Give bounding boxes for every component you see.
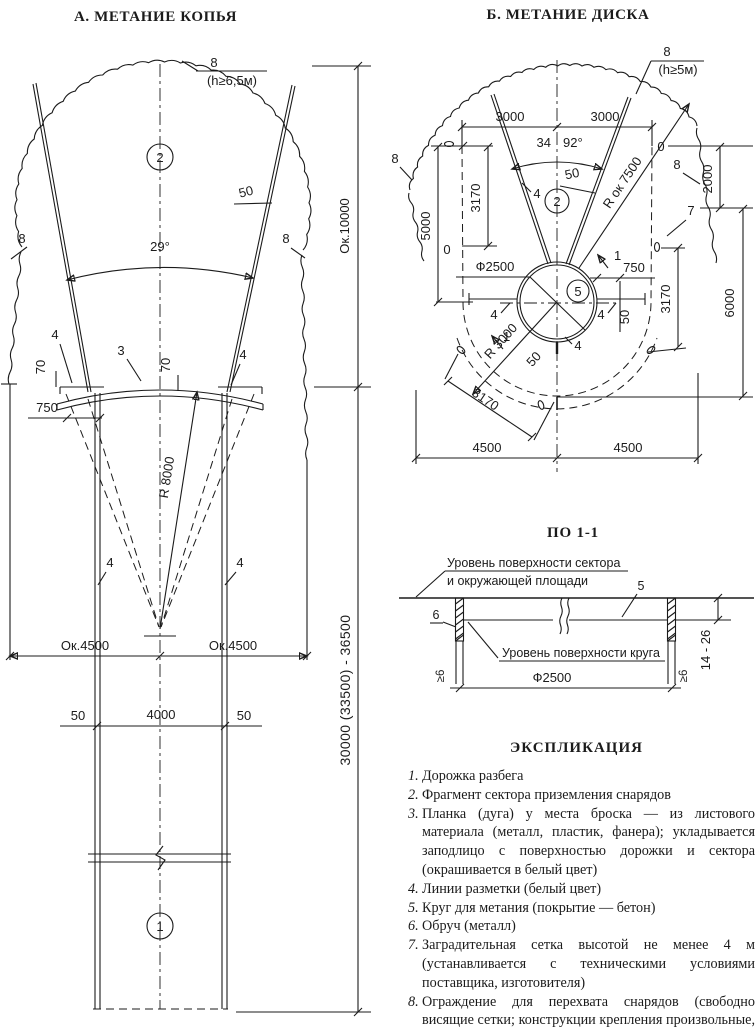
- level-mark-br: [646, 345, 656, 355]
- dim-3000-left: 3000: [496, 109, 525, 124]
- fence-ref-8: 8: [210, 55, 217, 70]
- level-circle-label: Уровень поверхности круга: [502, 646, 660, 660]
- section-po-1-1: ПО 1-1 Уровень поверхности сектора и окр…: [399, 525, 754, 688]
- item-text: Планка (дуга) у места броска — из листов…: [422, 805, 755, 880]
- callout-1-label: 1: [156, 919, 163, 934]
- dim-750: 750: [36, 400, 58, 415]
- fence-ref-8-right-b: 8: [673, 157, 680, 172]
- radius-8000-label: R 8000: [156, 455, 177, 499]
- leader-level-sector: [416, 571, 445, 597]
- wing-ref-4-left: 4: [51, 327, 58, 342]
- explication-item: 2.Фрагмент сектора приземления снарядов: [398, 786, 755, 805]
- explication-block: ЭКСПЛИКАЦИЯ 1.Дорожка разбега 2.Фрагмент…: [398, 740, 755, 1031]
- ref-4-wing-right: 4: [597, 307, 604, 322]
- diagram-discus-throw: 3000 3000 34 92° 50 R ок 7500 2 8 (h≥5м)…: [391, 44, 753, 472]
- diagram-javelin-throw: 29° 2 8 (h≥6,5м) 8 8 50: [1, 55, 371, 1012]
- drawing-sheet: А. МЕТАНИЕ КОПЬЯ Б. МЕТАНИЕ ДИСКА: [0, 0, 756, 1031]
- explication-item: 7.Заградительная сетка высотой не менее …: [398, 936, 755, 992]
- dim-ok4500-right: Ок.4500: [209, 638, 257, 653]
- level-mark-right-mid: [655, 243, 660, 252]
- item-number: 1.: [398, 767, 422, 786]
- dim-ok10000: Ок.10000: [337, 198, 352, 254]
- sector-marking-lines: [33, 83, 295, 392]
- dim-50b-right: 50: [617, 310, 632, 324]
- dim-50-left: 50: [71, 708, 85, 723]
- dim-ok4500-left: Ок.4500: [61, 638, 109, 653]
- dim-50-right: 50: [237, 708, 251, 723]
- explication-item: 8.Ограждение для перехвата снарядов (сво…: [398, 993, 755, 1031]
- dim-14-26: 14 - 26: [698, 630, 713, 670]
- leader-runway-4-left: [98, 572, 106, 585]
- runway-line-ref-4-left: 4: [106, 555, 113, 570]
- ref-4-sector: 4: [533, 186, 540, 201]
- level-sector-label-2: и окружающей площади: [447, 574, 588, 588]
- angle-label-29: 29°: [150, 239, 170, 254]
- section-mark-1-lower: 1: [503, 329, 510, 344]
- item-number: 6.: [398, 917, 422, 936]
- leader-4-wr: [608, 303, 616, 313]
- leader-8-right-b: [683, 173, 700, 184]
- leader-4-left: [60, 344, 72, 383]
- level-mark-bl: [456, 345, 466, 355]
- explication-title: ЭКСПЛИКАЦИЯ: [398, 740, 755, 757]
- level-sector-label-1: Уровень поверхности сектора: [447, 556, 620, 570]
- explication-item: 3.Планка (дуга) у места броска — из лист…: [398, 805, 755, 880]
- dim-4000: 4000: [147, 707, 176, 722]
- leader-3: [127, 359, 141, 381]
- ref-6: 6: [433, 608, 440, 622]
- section-mark-1-upper: 1: [614, 248, 621, 263]
- line-width-50: 50: [237, 183, 255, 201]
- dim-750b: 750: [623, 260, 645, 275]
- ref-5: 5: [638, 579, 645, 593]
- runway-line-ref-4-right: 4: [236, 555, 243, 570]
- dim-70-center: 70: [158, 358, 173, 372]
- leader-7: [667, 220, 686, 236]
- fence-ref-8-right: 8: [282, 231, 289, 246]
- line-width-50-b: 50: [563, 165, 580, 183]
- dim-f2500-section: Ф2500: [533, 670, 572, 685]
- item-text: Фрагмент сектора приземления снарядов: [422, 786, 755, 805]
- leader-fence-top-b: [636, 61, 651, 94]
- dim-3000-right: 3000: [591, 109, 620, 124]
- section-title: ПО 1-1: [547, 525, 599, 541]
- item-text: Линии разметки (белый цвет): [422, 880, 755, 899]
- fence-ref-8-left-b: 8: [391, 151, 398, 166]
- fence-height-note-b: (h≥5м): [658, 62, 697, 77]
- leader-6: [443, 622, 456, 627]
- item-number: 3.: [398, 805, 422, 880]
- item-number: 8.: [398, 993, 422, 1031]
- level-mark-bottom: [537, 400, 545, 410]
- dim-3170-left: 3170: [468, 184, 483, 213]
- board-ref-3: 3: [117, 343, 124, 358]
- item-number: 5.: [398, 899, 422, 918]
- callout-2-label: 2: [156, 150, 163, 165]
- dim-2000: 2000: [700, 165, 715, 194]
- item-number: 2.: [398, 786, 422, 805]
- dim-ge6-right: ≥6: [678, 670, 690, 683]
- explication-item: 5.Круг для метания (покрытие — бетон): [398, 899, 755, 918]
- item-text: Дорожка разбега: [422, 767, 755, 786]
- radius-8000-line: [160, 392, 197, 629]
- dim-4500-right: 4500: [614, 440, 643, 455]
- dim-30000-36500: 30000 (33500) - 36500: [337, 615, 353, 766]
- leader-8-left-b: [400, 167, 412, 180]
- dim-50-r3000: 50: [523, 349, 544, 370]
- ref-4-wing-left: 4: [490, 307, 497, 322]
- item-text: Ограждение для перехвата снарядов (свобо…: [422, 993, 755, 1031]
- ref-4-bottom: 4: [574, 338, 581, 353]
- break-symbol: [88, 846, 231, 870]
- ext-3170d-1: [445, 354, 458, 379]
- dim-6000: 6000: [722, 289, 737, 318]
- item-text: Заградительная сетка высотой не менее 4 …: [422, 936, 755, 992]
- angle-label-92: 92°: [563, 135, 583, 150]
- callout-5-label: 5: [574, 284, 581, 299]
- level-zero-right: 0: [657, 139, 664, 154]
- item-number: 7.: [398, 936, 422, 992]
- explication-item: 6.Обруч (металл): [398, 917, 755, 936]
- dim-3170-diag: 3170: [469, 385, 501, 414]
- leader-level-circle: [468, 622, 498, 658]
- dim-5000: 5000: [418, 212, 433, 241]
- dim-4500-left: 4500: [473, 440, 502, 455]
- level-zero-left: 0: [443, 242, 450, 257]
- item-text: Круг для метания (покрытие — бетон): [422, 899, 755, 918]
- dim-f2500-label: Ф2500: [476, 259, 515, 274]
- net-ref-7: 7: [687, 203, 694, 218]
- dim-70-left: 70: [33, 360, 48, 374]
- item-text: Обруч (металл): [422, 917, 755, 936]
- dim-ge6-left: ≥6: [435, 670, 447, 683]
- dim-3170-right: 3170: [658, 285, 673, 314]
- radius-3000-label: R 3000: [481, 320, 520, 361]
- ext-3170r-bottom: [648, 348, 686, 352]
- fence-height-note: (h≥6,5м): [207, 73, 257, 88]
- section-arrow-upper: [598, 255, 608, 268]
- wing-ref-4-right: 4: [239, 347, 246, 362]
- callout-2b-label: 2: [553, 194, 560, 209]
- angle-label-34: 34: [537, 135, 551, 150]
- explication-item: 1.Дорожка разбега: [398, 767, 755, 786]
- item-number: 4.: [398, 880, 422, 899]
- explication-item: 4.Линии разметки (белый цвет): [398, 880, 755, 899]
- fence-ref-8-top-b: 8: [663, 44, 670, 59]
- leader-4-wl: [501, 303, 510, 313]
